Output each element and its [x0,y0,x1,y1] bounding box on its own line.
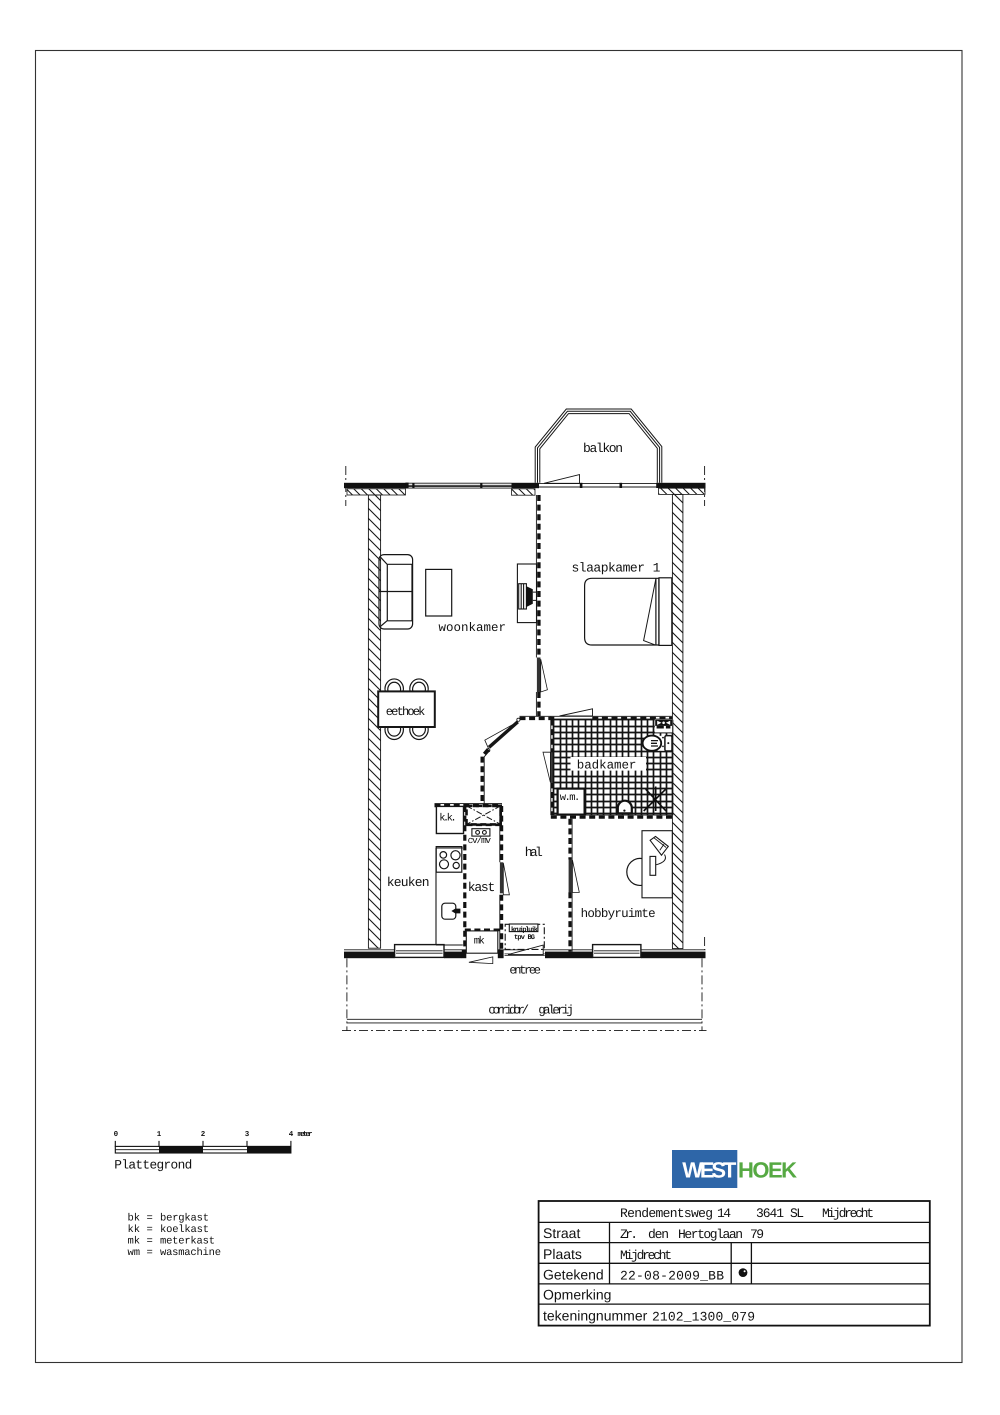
svg-text:Plattegrond: Plattegrond [114,1158,192,1173]
svg-text:kast: kast [468,880,496,895]
svg-text:cv/mv: cv/mv [468,835,492,846]
svg-text:0: 0 [114,1130,119,1139]
svg-text:2102_1300_079: 2102_1300_079 [652,1310,755,1325]
svg-text:slaapkamer: slaapkamer [572,561,646,576]
svg-text:1: 1 [157,1131,162,1139]
svg-text:hobbyruimte: hobbyruimte [581,907,656,921]
svg-text:w.m.: w.m. [560,792,581,804]
svg-text:HOEK: HOEK [738,1158,797,1183]
svg-text:Rendementsweg: Rendementsweg [620,1206,713,1221]
svg-text:woonkamer: woonkamer [439,621,507,635]
svg-text:14: 14 [717,1206,731,1221]
svg-text:badkamer: badkamer [577,759,637,773]
svg-text:bergkast: bergkast [160,1212,209,1224]
svg-text:hal: hal [525,845,543,860]
svg-text:meter: meter [298,1131,313,1139]
svg-text:=: = [147,1224,153,1236]
svg-text:tekeningnummer: tekeningnummer [543,1308,648,1324]
svg-text:1: 1 [653,561,661,576]
svg-text:eethoek: eethoek [386,705,426,719]
svg-text:3: 3 [245,1130,250,1139]
svg-text:k.k.: k.k. [439,813,457,825]
svg-text:WEST: WEST [682,1158,737,1183]
svg-text:Mijdrecht: Mijdrecht [822,1206,874,1221]
svg-text:Getekend: Getekend [543,1266,604,1282]
svg-text:wm: wm [128,1247,141,1259]
svg-text:Hertoglaan: Hertoglaan [678,1227,743,1242]
svg-text:Mijdrecht: Mijdrecht [620,1248,672,1263]
svg-text:=: = [147,1235,153,1247]
svg-text:22-08-2009_BB: 22-08-2009_BB [620,1268,724,1283]
svg-text:balkon: balkon [583,441,623,456]
svg-text:=: = [147,1247,153,1259]
svg-text:wasmachine: wasmachine [160,1247,221,1259]
svg-text:3641: 3641 [756,1206,784,1221]
svg-text:meterkast: meterkast [160,1235,215,1247]
svg-text:corridor/: corridor/ [488,1004,529,1018]
svg-text:entree: entree [509,963,541,977]
svg-text:bk: bk [128,1212,141,1224]
svg-text:den: den [648,1227,669,1242]
svg-text:mk: mk [128,1235,141,1247]
svg-text:79: 79 [750,1227,764,1242]
svg-text:=: = [147,1212,153,1224]
svg-text:mk: mk [474,935,485,947]
svg-text:kk: kk [128,1224,141,1236]
svg-text:keuken: keuken [387,875,430,890]
svg-text:tpv BG: tpv BG [514,934,535,942]
svg-text:SL: SL [790,1206,804,1221]
svg-text:Plaats: Plaats [543,1246,582,1262]
svg-text:koelkast: koelkast [160,1224,209,1236]
svg-text:Opmerking: Opmerking [543,1287,611,1303]
svg-text:4: 4 [289,1131,294,1139]
svg-text:galerij: galerij [538,1004,574,1018]
svg-text:Zr.: Zr. [620,1227,638,1242]
svg-text:2: 2 [201,1130,206,1139]
svg-text:Straat: Straat [543,1225,580,1241]
